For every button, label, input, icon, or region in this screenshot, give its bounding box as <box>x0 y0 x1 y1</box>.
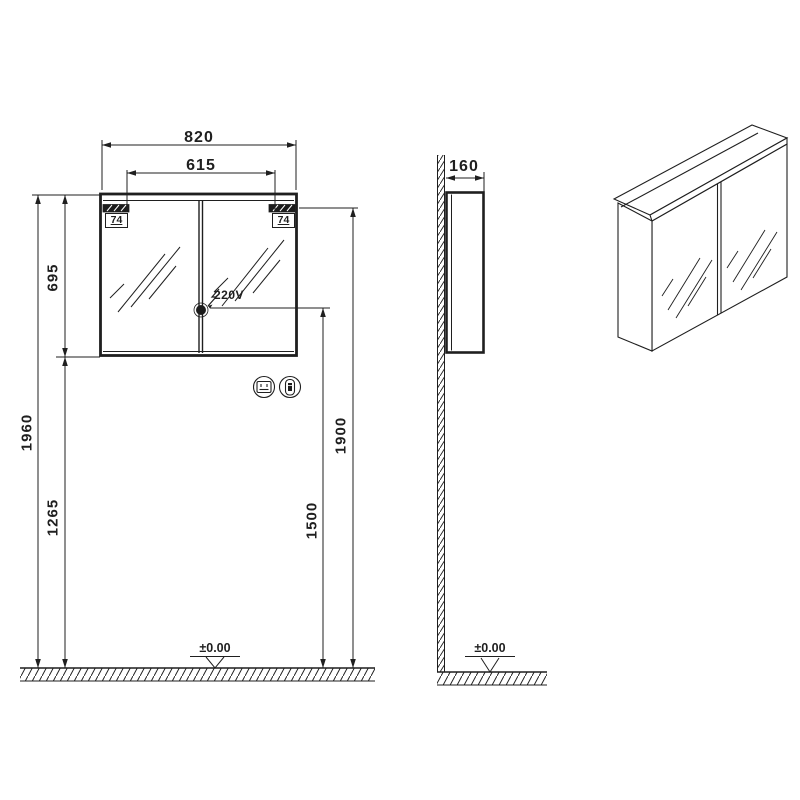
side-view <box>437 155 547 685</box>
socket-icon <box>254 377 275 398</box>
light-fixture-left <box>103 205 129 213</box>
dim-left-chain <box>32 195 100 668</box>
front-cabinet-outline <box>101 194 297 356</box>
front-floor <box>20 668 375 681</box>
level-marker-icon <box>206 657 224 668</box>
light-width-right-label: 74 <box>272 213 295 228</box>
side-floor-level-label: ±0.00 <box>465 641 515 657</box>
switch-icon <box>280 377 301 398</box>
light-fixture-right <box>269 205 295 213</box>
mirror-reflections-left <box>110 247 180 312</box>
light-width-left-label: 74 <box>105 213 128 228</box>
dim-cabinet-height-label: 695 <box>45 248 62 308</box>
technical-drawing: 820 615 74 74 695 1960 1265 1900 1500 22… <box>0 0 800 800</box>
side-floor <box>437 672 547 685</box>
dim-615 <box>127 170 275 212</box>
dim-width-total-label: 820 <box>169 129 229 147</box>
dim-lights-spacing-label: 615 <box>171 157 231 175</box>
drawing-linework <box>0 0 800 800</box>
perspective-view <box>614 125 787 351</box>
front-floor-level-label: ±0.00 <box>190 641 240 657</box>
socket-point <box>194 303 208 317</box>
side-cabinet-outline <box>447 193 484 353</box>
level-marker-icon <box>481 658 499 672</box>
wall-section <box>438 155 445 672</box>
dim-depth-label: 160 <box>434 158 494 176</box>
dim-total-height-label: 1960 <box>19 403 36 463</box>
persp-side-panel <box>618 203 652 351</box>
dim-mirror-top-height-label: 1900 <box>333 406 350 466</box>
dim-cabinet-bottom-height-label: 1265 <box>45 488 62 548</box>
front-view <box>20 140 375 681</box>
socket-voltage-label: 220V <box>214 288 244 302</box>
dim-socket-height-label: 1500 <box>304 491 321 551</box>
